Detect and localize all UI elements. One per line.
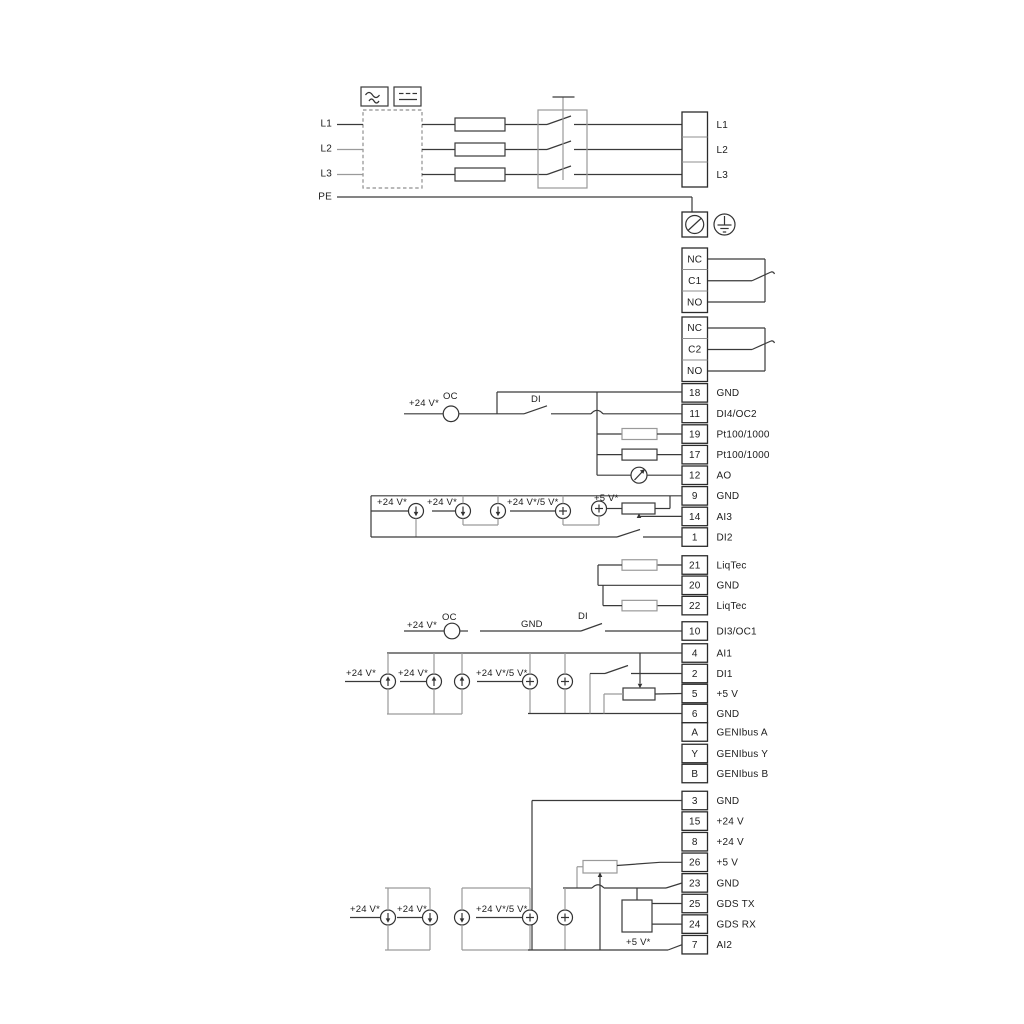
earth-icon bbox=[714, 214, 735, 235]
relay1-block: NC C1 NO bbox=[682, 248, 775, 313]
terminal-Y: YGENIbus Y bbox=[682, 744, 768, 763]
terminal-label: +24 V bbox=[717, 817, 745, 828]
ai3-di2-circuit: +24 V* +24 V* +24 V*/5 V* +5 V* bbox=[371, 493, 682, 537]
terminal-number: 9 bbox=[692, 491, 698, 502]
mains-label-l3: L3 bbox=[320, 169, 332, 180]
mains-label-pe: PE bbox=[318, 192, 332, 203]
oc-output-icon bbox=[443, 406, 459, 422]
wiring-diagram-canvas: L1 L2 L3 PE bbox=[0, 0, 1024, 1024]
terminal-8: 8+24 V bbox=[682, 832, 744, 851]
terminal-label-l2: L2 bbox=[717, 145, 729, 156]
mains-label-l1: L1 bbox=[320, 119, 332, 130]
terminal-21: 21LiqTec bbox=[682, 556, 747, 575]
terminal-label: GND bbox=[717, 491, 740, 502]
terminal-label: AI1 bbox=[717, 648, 733, 659]
terminal-number: 10 bbox=[689, 626, 701, 637]
current-source-icon bbox=[423, 910, 438, 925]
terminal-number: 24 bbox=[689, 920, 701, 931]
terminal-label: GENIbus A bbox=[717, 727, 768, 738]
current-source-icon bbox=[381, 910, 396, 925]
terminal-number: A bbox=[691, 727, 698, 738]
terminal-18: 18GND bbox=[682, 384, 739, 403]
terminal-6: 6GND bbox=[682, 704, 739, 723]
liqtec-sensor-2 bbox=[622, 600, 657, 611]
terminal-number: 8 bbox=[692, 837, 698, 848]
current-source-icon bbox=[381, 674, 396, 689]
terminal-label: GND bbox=[717, 796, 740, 807]
terminal-number: 4 bbox=[692, 648, 698, 659]
mains-terminal-block: L1 L2 L3 bbox=[682, 112, 728, 187]
wire-hop bbox=[592, 885, 604, 888]
line-pe bbox=[337, 197, 692, 212]
terminal-label: GND bbox=[717, 878, 740, 889]
potentiometer bbox=[583, 861, 617, 874]
v24-5v-label: +24 V*/5 V* bbox=[507, 497, 559, 508]
terminal-2: 2DI1 bbox=[682, 664, 733, 683]
current-source-icon bbox=[491, 504, 506, 519]
oc-output-icon bbox=[444, 623, 460, 639]
terminal-4: 4AI1 bbox=[682, 644, 732, 663]
terminal-7: 7AI2 bbox=[682, 935, 732, 954]
pt100-ao-circuit bbox=[597, 429, 682, 484]
fuse-l3 bbox=[455, 168, 505, 181]
v5-label: +5 V* bbox=[626, 937, 651, 948]
terminal-label-l3: L3 bbox=[717, 170, 729, 181]
terminal-label: GND bbox=[717, 581, 740, 592]
wiring-diagram: L1 L2 L3 PE bbox=[0, 0, 1024, 1024]
current-source-icon bbox=[592, 501, 607, 516]
relay2-nc: NC bbox=[687, 323, 702, 334]
terminal-9: 9GND bbox=[682, 487, 739, 506]
terminal-number: 14 bbox=[689, 512, 701, 523]
terminal-23: 23GND bbox=[682, 874, 739, 893]
v24-label: +24 V* bbox=[407, 620, 437, 631]
mains-input-section: L1 L2 L3 PE bbox=[318, 87, 692, 212]
v24-label: +24 V* bbox=[409, 398, 439, 409]
line-l1 bbox=[337, 116, 682, 131]
terminal-number: Y bbox=[691, 749, 698, 760]
fuse-l1 bbox=[455, 118, 505, 131]
terminal-number: 18 bbox=[689, 388, 701, 399]
relay1-c1: C1 bbox=[688, 276, 701, 287]
terminal-label: LiqTec bbox=[717, 560, 747, 571]
terminal-label: GND bbox=[717, 388, 740, 399]
pt100-sensor-1 bbox=[622, 429, 657, 440]
terminal-number: 17 bbox=[689, 450, 701, 461]
pt100-sensor-2 bbox=[622, 449, 657, 460]
v24-5v-label: +24 V*/5 V* bbox=[476, 668, 528, 679]
current-source-icon bbox=[409, 504, 424, 519]
current-source-icon bbox=[558, 910, 573, 925]
terminal-label: Pt100/1000 bbox=[717, 450, 770, 461]
mains-label-l2: L2 bbox=[320, 144, 332, 155]
terminal-number: 1 bbox=[692, 532, 698, 543]
terminal-label: LiqTec bbox=[717, 601, 747, 612]
terminal-5: 5+5 V bbox=[682, 684, 738, 703]
potentiometer bbox=[622, 503, 655, 514]
relay2-contact bbox=[708, 328, 775, 371]
terminal-19: 19Pt100/1000 bbox=[682, 425, 770, 444]
terminal-number: 23 bbox=[689, 878, 701, 889]
v24-label: +24 V* bbox=[350, 904, 380, 915]
terminal-label: Pt100/1000 bbox=[717, 429, 770, 440]
terminal-12: 12AO bbox=[682, 466, 731, 485]
terminal-number: 2 bbox=[692, 669, 698, 680]
terminal-A: AGENIbus A bbox=[682, 723, 768, 742]
di-switch bbox=[524, 406, 547, 414]
gnd-label: GND bbox=[521, 619, 543, 630]
terminal-10: 10DI3/OC1 bbox=[682, 622, 757, 641]
terminal-label: DI1 bbox=[717, 669, 733, 680]
liqtec-terminal-strip: 21LiqTec 20GND 22LiqTec bbox=[598, 556, 747, 615]
terminal-24: 24GDS RX bbox=[682, 915, 756, 934]
current-source-icon bbox=[456, 504, 471, 519]
terminal-label: GDS RX bbox=[717, 920, 757, 931]
relay2-c2: C2 bbox=[688, 345, 701, 356]
di-label: DI bbox=[531, 394, 541, 405]
di3-switch bbox=[581, 624, 602, 632]
liqtec-sensor-circuit bbox=[598, 560, 682, 611]
filter-box bbox=[363, 110, 422, 188]
io-terminal-strip: 18GND 11DI4/OC2 19Pt100/1000 17Pt100/100… bbox=[682, 384, 770, 547]
line-l3 bbox=[337, 166, 682, 181]
terminal-17: 17Pt100/1000 bbox=[682, 445, 770, 464]
relay1-nc: NC bbox=[687, 254, 702, 265]
oc-label: OC bbox=[442, 612, 457, 623]
terminal-14: 14AI3 bbox=[682, 507, 732, 526]
terminal-label: +24 V bbox=[717, 837, 745, 848]
v24-label: +24 V* bbox=[427, 497, 457, 508]
terminal-label: AI2 bbox=[717, 940, 733, 951]
terminal-1: 1DI2 bbox=[682, 528, 733, 547]
current-source-icon bbox=[523, 674, 538, 689]
current-source-icon bbox=[523, 910, 538, 925]
terminal-label: DI4/OC2 bbox=[717, 409, 758, 420]
terminal-number: 7 bbox=[692, 940, 698, 951]
terminal-label: +5 V bbox=[717, 858, 739, 869]
current-source-icon bbox=[427, 674, 442, 689]
fuse-l2 bbox=[455, 143, 505, 156]
terminal-number: 5 bbox=[692, 689, 698, 700]
potentiometer bbox=[623, 688, 655, 700]
dc-symbol-icon bbox=[394, 87, 421, 106]
relay1-no: NO bbox=[687, 297, 702, 308]
terminal-11: 11DI4/OC2 bbox=[682, 404, 757, 423]
terminal-label: AI3 bbox=[717, 512, 733, 523]
terminal-label: DI2 bbox=[717, 532, 733, 543]
terminal-number: 11 bbox=[689, 409, 700, 420]
relay2-no: NO bbox=[687, 366, 702, 377]
ao-meter-icon bbox=[631, 467, 647, 483]
v24-label: +24 V* bbox=[377, 497, 407, 508]
terminal-label: GDS TX bbox=[717, 899, 755, 910]
terminal-number: 15 bbox=[689, 817, 701, 828]
v24-label: +24 V* bbox=[397, 904, 427, 915]
terminal-label: GND bbox=[717, 709, 740, 720]
current-source-icon bbox=[455, 674, 470, 689]
terminal-22: 22LiqTec bbox=[682, 596, 747, 615]
ai2-gds-circuit: +5 V* +24 V* +24 V* +24 V*/5 V* bbox=[350, 801, 682, 951]
terminal-3: 3GND bbox=[682, 791, 739, 810]
terminal-label: GENIbus B bbox=[717, 769, 769, 780]
terminal-label: +5 V bbox=[717, 689, 739, 700]
di2-switch bbox=[617, 530, 640, 538]
pe-terminal-icon bbox=[682, 212, 708, 237]
terminal-20: 20GND bbox=[682, 576, 739, 595]
relay1-contact bbox=[708, 259, 775, 302]
terminal-number: 3 bbox=[692, 796, 698, 807]
terminal-number: 6 bbox=[692, 709, 698, 720]
v24-label: +24 V* bbox=[346, 668, 376, 679]
terminal-number: 22 bbox=[689, 601, 701, 612]
current-source-icon bbox=[556, 504, 571, 519]
terminal-number: 20 bbox=[689, 581, 701, 592]
terminal-label-l1: L1 bbox=[717, 120, 729, 131]
gds-sensor-box bbox=[622, 900, 652, 932]
oc-label: OC bbox=[443, 391, 458, 402]
liqtec-sensor-1 bbox=[622, 560, 657, 571]
power-io-terminal-strip: 3GND 15+24 V 8+24 V 26+5 V 23GND 25GDS T… bbox=[682, 791, 756, 954]
terminal-15: 15+24 V bbox=[682, 812, 744, 831]
ac-symbol-icon bbox=[361, 87, 388, 106]
terminal-number: 12 bbox=[689, 471, 701, 482]
di-label: DI bbox=[578, 611, 588, 622]
ctrl-terminal-strip: 10DI3/OC1 4AI1 2DI1 5+5 V 6GND AGENIbus … bbox=[682, 622, 768, 783]
relay2-block: NC C2 NO bbox=[682, 317, 775, 382]
terminal-number: 21 bbox=[689, 560, 701, 571]
terminal-26: 26+5 V bbox=[682, 853, 738, 872]
terminal-number: B bbox=[691, 769, 698, 780]
terminal-label: DI3/OC1 bbox=[717, 626, 758, 637]
ai1-di1-circuit: +24 V* +24 V* +24 V*/5 V* bbox=[345, 653, 682, 714]
v24-5v-label: +24 V*/5 V* bbox=[476, 904, 528, 915]
terminal-number: 19 bbox=[689, 429, 701, 440]
current-source-icon bbox=[558, 674, 573, 689]
current-source-icon bbox=[455, 910, 470, 925]
terminal-number: 26 bbox=[689, 858, 701, 869]
terminal-number: 25 bbox=[689, 899, 701, 910]
di1-switch bbox=[605, 666, 628, 674]
line-l2 bbox=[337, 141, 682, 156]
v24-label: +24 V* bbox=[398, 668, 428, 679]
terminal-label: AO bbox=[717, 471, 732, 482]
terminal-label: GENIbus Y bbox=[717, 749, 769, 760]
di3-oc1-circuit: +24 V* OC GND DI bbox=[404, 611, 682, 639]
terminal-B: BGENIbus B bbox=[682, 764, 768, 783]
terminal-25: 25GDS TX bbox=[682, 894, 755, 913]
